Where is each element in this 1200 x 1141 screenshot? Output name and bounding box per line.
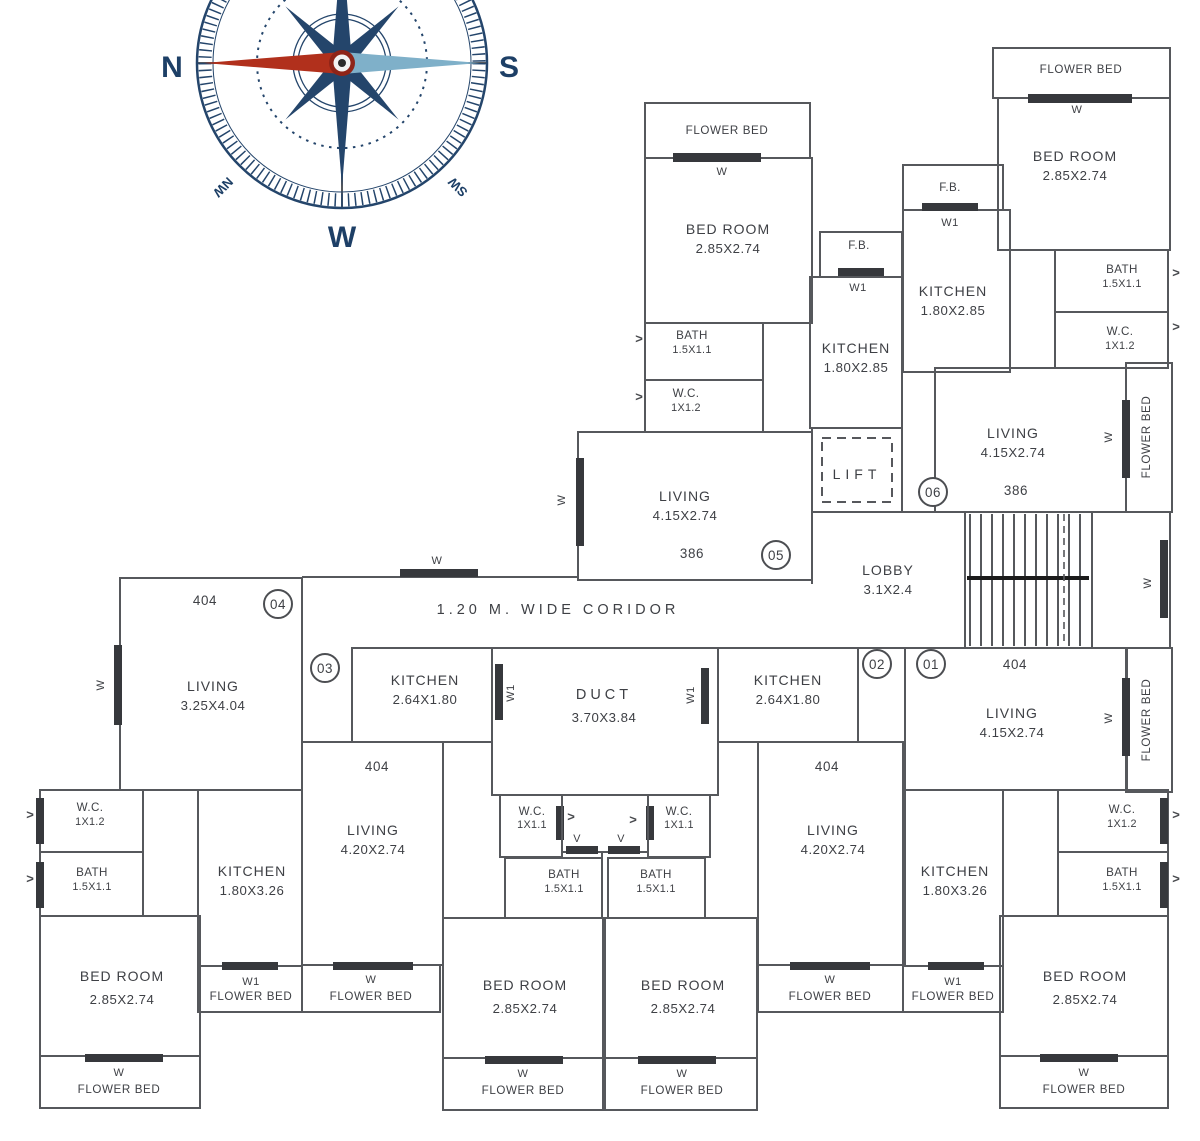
unit04-fb-w1-window-label: W1 [242, 976, 260, 988]
unit02-bedroom-label: BED ROOM [641, 977, 725, 993]
compass-label-west: W [328, 221, 357, 254]
stair-landing-window-bar [1160, 540, 1168, 618]
unit-05: FLOWER BED W BED ROOM 2.85X2.74 BATH 1.5… [556, 103, 902, 580]
duct-shaft: DUCT 3.70X3.84 W1 W1 V V > > [492, 648, 718, 918]
unit01-bedroom [1000, 916, 1168, 1056]
unit01-flower-bed-w [1000, 1056, 1168, 1108]
unit05-area: 386 [680, 546, 704, 561]
corridor-label: 1.20 M. WIDE CORIDOR [437, 602, 680, 618]
unit03-fb-living-label: FLOWER BED [330, 990, 413, 1003]
compass-needle-south-blue [342, 52, 480, 74]
compass-label-south: S [499, 51, 519, 84]
floor-plan-canvas: N S W NW SW FLOWER BED W BED ROOM 2.85X2… [0, 0, 1200, 1141]
duct-label: DUCT [576, 687, 632, 703]
unit04-flower-bed-w [40, 1056, 200, 1108]
compass-point-down [332, 63, 352, 187]
unit05-living-dims: 4.15X2.74 [653, 508, 718, 523]
lift-label: LIFT [833, 466, 882, 482]
unit01-wc-dims: 1X1.2 [1107, 818, 1137, 830]
unit01-area: 404 [1003, 657, 1027, 672]
lobby-walls [812, 512, 965, 648]
unit02-kitchen-label: KITCHEN [754, 672, 822, 688]
unit01-bath-dims: 1.5X1.1 [1102, 881, 1141, 893]
unit02-bath-label: BATH [640, 868, 672, 881]
corridor-window-bar [400, 569, 478, 577]
duct-dims: 3.70X3.84 [572, 710, 637, 725]
unit03-wc-door-arrow-icon: > [567, 809, 575, 824]
unit01-fb-w1-label: FLOWER BED [912, 990, 995, 1003]
duct-window-right-label: W1 [685, 686, 697, 704]
unit05-wc [645, 380, 763, 432]
unit04-bedroom [40, 916, 200, 1056]
unit01-fb-w-label: FLOWER BED [1043, 1083, 1126, 1096]
unit01-number: 01 [923, 657, 939, 672]
unit04-wc-dims: 1X1.2 [75, 816, 105, 828]
lobby-label: LOBBY [862, 562, 914, 578]
unit02-living-dims: 4.20X2.74 [801, 842, 866, 857]
unit05-bedroom-dims: 2.85X2.74 [696, 241, 761, 256]
unit05-wc-door-arrow-icon: > [635, 389, 643, 404]
compass-rose: N S W NW SW [161, 0, 519, 254]
unit01-bedroom-label: BED ROOM [1043, 968, 1127, 984]
unit02-bedroom-dims: 2.85X2.74 [651, 1001, 716, 1016]
unit01-bath-label: BATH [1106, 866, 1138, 879]
unit02-area: 404 [815, 759, 839, 774]
unit02-wc-label: W.C. [666, 805, 693, 818]
unit02-fb-bedroom-label: FLOWER BED [641, 1084, 724, 1097]
unit06-window-w-label: W [1072, 104, 1083, 116]
unit06-wc-door-arrow-icon: > [1172, 319, 1180, 334]
unit05-bath-label: BATH [676, 329, 708, 342]
unit02-fb-bedroom-window-label: W [677, 1068, 688, 1080]
unit03-bath-label: BATH [548, 868, 580, 881]
compass-label-southwest: SW [445, 174, 471, 200]
unit-01: 404 LIVING 4.15X2.74 FLOWER BED W W.C. 1… [903, 648, 1180, 1108]
unit02-bath-dims: 1.5X1.1 [636, 883, 675, 895]
floor-plan: N S W NW SW FLOWER BED W BED ROOM 2.85X2… [0, 0, 1200, 1141]
unit02-wc-door-arrow-icon: > [629, 812, 637, 827]
unit05-fb-window-label: W1 [849, 282, 867, 294]
unit03-living-label: LIVING [347, 822, 399, 838]
unit03-living-dims: 4.20X2.74 [341, 842, 406, 857]
unit06-living-dims: 4.15X2.74 [981, 445, 1046, 460]
unit04-bath-door-arrow-icon: > [26, 871, 34, 886]
unit06-bath-label: BATH [1106, 263, 1138, 276]
unit06-wc-label: W.C. [1107, 325, 1134, 338]
unit05-kitchen-label: KITCHEN [822, 340, 890, 356]
compass-label-northwest: NW [210, 174, 236, 200]
shaft-vent-right-label: V [617, 833, 625, 845]
unit06-area: 386 [1004, 483, 1028, 498]
unit04-wc-label: W.C. [77, 801, 104, 814]
unit04-bath-dims: 1.5X1.1 [72, 881, 111, 893]
unit02-wc-dims: 1X1.1 [664, 819, 694, 831]
unit01-bedroom-dims: 2.85X2.74 [1053, 992, 1118, 1007]
unit01-bath-door-arrow-icon: > [1172, 871, 1180, 886]
unit04-area: 404 [193, 593, 217, 608]
unit05-bath-door-arrow-icon: > [635, 331, 643, 346]
unit03-fb-bedroom-label: FLOWER BED [482, 1084, 565, 1097]
unit04-flower-bed-w1 [198, 966, 302, 1012]
stair-landing-window-label: W [1142, 577, 1154, 588]
unit06-flower-bed-side-window-label: W [1103, 431, 1115, 442]
unit02-living-label: LIVING [807, 822, 859, 838]
unit01-wc-label: W.C. [1109, 803, 1136, 816]
unit05-living-window-label: W [556, 494, 568, 505]
unit02-flower-bed-living [758, 965, 903, 1012]
unit04-kitchen-dims: 1.80X3.26 [220, 883, 285, 898]
unit06-bedroom-label: BED ROOM [1033, 148, 1117, 164]
unit01-living-dims: 4.15X2.74 [980, 725, 1045, 740]
unit05-kitchen-dims: 1.80X2.85 [824, 360, 889, 375]
unit05-wc-dims: 1X1.2 [671, 402, 701, 414]
unit05-window-w-label: W [717, 166, 728, 178]
shaft-vent-left-label: V [573, 833, 581, 845]
unit03-bedroom-dims: 2.85X2.74 [493, 1001, 558, 1016]
unit01-kitchen-dims: 1.80X3.26 [923, 883, 988, 898]
unit06-flower-bed-side-label: FLOWER BED [1140, 396, 1153, 479]
unit03-bedroom-label: BED ROOM [483, 977, 567, 993]
unit01-wc-door-arrow-icon: > [1172, 807, 1180, 822]
unit01-flower-bed-side-window-label: W [1103, 712, 1115, 723]
unit04-bath-label: BATH [76, 866, 108, 879]
compass-label-north: N [161, 51, 183, 84]
unit01-fb-w-window-label: W [1079, 1067, 1090, 1079]
unit06-kitchen-dims: 1.80X2.85 [921, 303, 986, 318]
compass-hub-center [338, 59, 346, 67]
unit05-living-label: LIVING [659, 488, 711, 504]
unit01-flower-bed-w1 [903, 966, 1003, 1012]
unit-02: KITCHEN 2.64X1.80 404 LIVING 4.20X2.74 W… [605, 648, 903, 1110]
unit03-fb-living-window-label: W [366, 974, 377, 986]
unit05-bath-dims: 1.5X1.1 [672, 344, 711, 356]
unit03-bath-dims: 1.5X1.1 [544, 883, 583, 895]
unit02-fb-living-window-label: W [825, 974, 836, 986]
unit05-number: 05 [768, 548, 784, 563]
unit05-flower-bed-label: FLOWER BED [686, 124, 769, 137]
unit02-number: 02 [869, 657, 885, 672]
unit03-kitchen-dims: 2.64X1.80 [393, 692, 458, 707]
unit06-kitchen-label: KITCHEN [919, 283, 987, 299]
unit01-kitchen-label: KITCHEN [921, 863, 989, 879]
unit06-wc-dims: 1X1.2 [1105, 340, 1135, 352]
unit04-bedroom-label: BED ROOM [80, 968, 164, 984]
unit06-flower-bed-label: FLOWER BED [1040, 63, 1123, 76]
unit06-bath-door-arrow-icon: > [1172, 265, 1180, 280]
unit04-number: 04 [270, 597, 286, 612]
unit06-living-label: LIVING [987, 425, 1039, 441]
unit05-bedroom-label: BED ROOM [686, 221, 770, 237]
common-areas: LIFT LOBBY 3.1X2.4 W W 1.20 M. WIDE CORI… [302, 428, 1170, 648]
unit04-living-dims: 3.25X4.04 [181, 698, 246, 713]
unit04-wc-door-arrow-icon: > [26, 807, 34, 822]
unit05-wc-label: W.C. [673, 387, 700, 400]
unit03-number: 03 [317, 661, 333, 676]
unit-06: FLOWER BED W BED ROOM 2.85X2.74 F.B. W1 … [903, 48, 1180, 512]
unit03-wc-dims: 1X1.1 [517, 819, 547, 831]
unit04-fb-w-label: FLOWER BED [78, 1083, 161, 1096]
unit02-kitchen-dims: 2.64X1.80 [756, 692, 821, 707]
unit04-bedroom-dims: 2.85X2.74 [90, 992, 155, 1007]
unit04-living-window-label: W [95, 679, 107, 690]
unit03-fb-bedroom-window-label: W [518, 1068, 529, 1080]
unit04-living-label: LIVING [187, 678, 239, 694]
unit05-fb-label: F.B. [848, 239, 870, 252]
unit03-wc-label: W.C. [519, 805, 546, 818]
unit04-kitchen-label: KITCHEN [218, 863, 286, 879]
unit03-kitchen-label: KITCHEN [391, 672, 459, 688]
unit06-bath-dims: 1.5X1.1 [1102, 278, 1141, 290]
lobby-dims: 3.1X2.4 [864, 582, 913, 597]
unit06-bedroom-dims: 2.85X2.74 [1043, 168, 1108, 183]
unit02-fb-living-label: FLOWER BED [789, 990, 872, 1003]
unit04-fb-w-window-label: W [114, 1067, 125, 1079]
duct-window-left-label: W1 [505, 684, 517, 702]
compass-star [204, 0, 480, 187]
unit-04: 404 LIVING 3.25X4.04 W W.C. 1X1.2 BATH 1… [26, 578, 302, 1108]
unit01-living-label: LIVING [986, 705, 1038, 721]
unit03-area: 404 [365, 759, 389, 774]
unit01-fb-w1-window-label: W1 [944, 976, 962, 988]
unit03-flower-bed-living [302, 965, 440, 1012]
compass-needle-north-red [204, 52, 342, 74]
unit06-number: 06 [925, 485, 941, 500]
corridor-window-label: W [432, 555, 443, 567]
unit06-fb-window-label: W1 [941, 217, 959, 229]
unit01-flower-bed-side-label: FLOWER BED [1140, 679, 1153, 762]
unit06-fb-label: F.B. [939, 181, 961, 194]
unit04-fb-w1-label: FLOWER BED [210, 990, 293, 1003]
unit-03: KITCHEN 2.64X1.80 404 LIVING 4.20X2.74 W… [302, 648, 603, 1110]
